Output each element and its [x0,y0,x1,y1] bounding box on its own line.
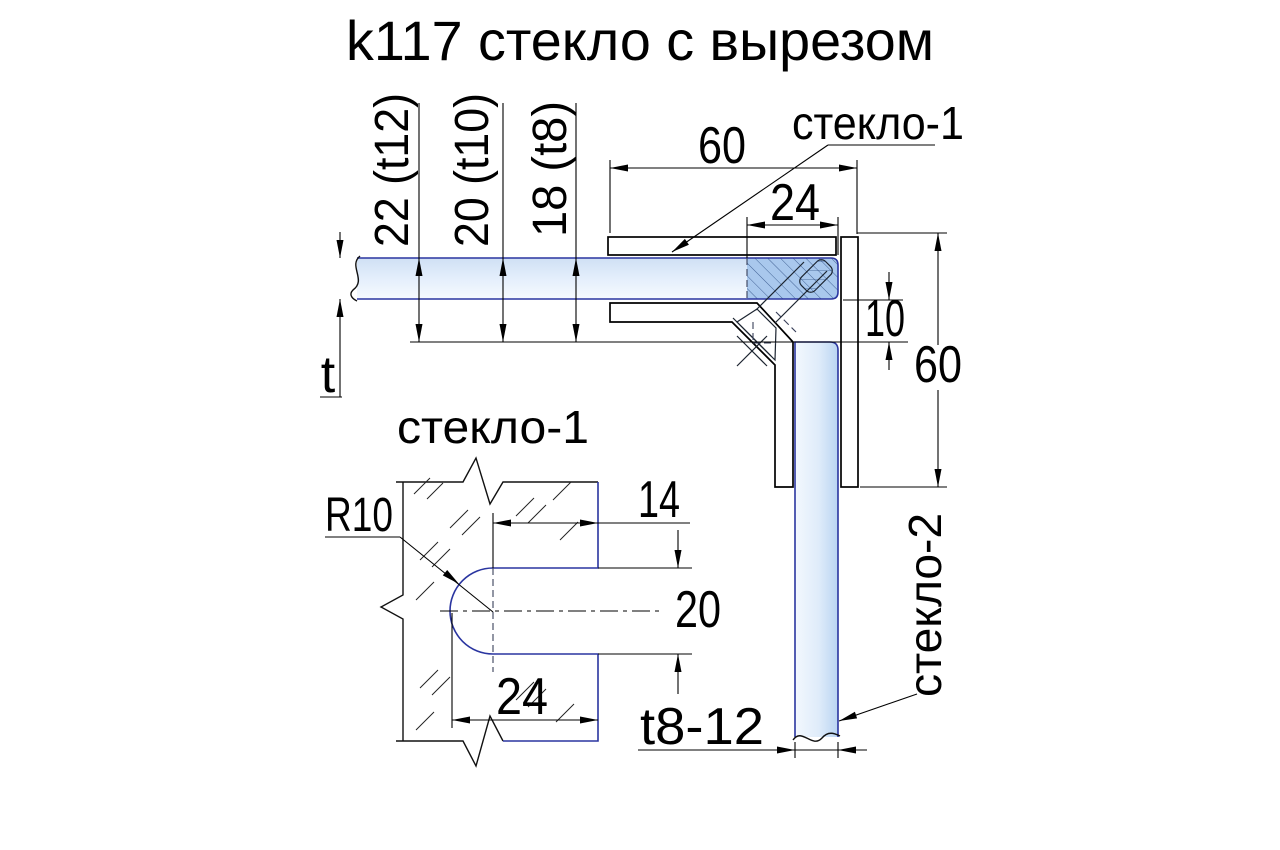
glass1-label: стекло-1 [792,97,964,149]
detail-centerlines [440,513,660,672]
glass2-label: стекло-2 [899,513,951,697]
dim-10-text: 10 [865,290,905,348]
dim-24-detail: 24 [452,613,598,728]
dim-20: 20 [598,530,721,694]
top-clamp-plate [608,237,836,255]
dim-20-text: 20 [675,581,721,639]
drawing-canvas: k117 стекло с вырезом [0,0,1280,850]
technical-drawing-page: k117 стекло с вырезом [0,0,1280,850]
dim-side-60-text: 60 [914,336,962,394]
glass1-horizontal-panel [351,256,838,301]
dim-top-60-text: 60 [698,117,746,175]
inner-clamp-plate [610,303,793,487]
dim-side-60: 60 [857,233,962,487]
dim-t: t [320,232,344,404]
dim-14-text: 14 [638,471,680,529]
dim-thickness-t12: 22 (t12) [366,93,419,247]
dim-t8-12-text: t8-12 [640,698,764,756]
dim-thickness-t8: 18 (t8) [524,101,577,237]
dim-24-detail-text: 24 [496,668,548,726]
dim-t-text: t [321,346,336,404]
page-title: k117 стекло с вырезом [346,9,934,72]
glass2-vertical-panel [793,342,840,741]
dim-r10: R10 [325,489,493,612]
detail-title: стекло-1 [397,401,589,453]
dim-r10-text: R10 [325,489,393,542]
outer-clamp-plate [841,237,858,487]
dim-14: 14 [493,471,690,529]
glass2-callout: стекло-2 [839,513,951,721]
dim-24-text: 24 [770,174,820,232]
dim-thickness-t10: 20 (t10) [446,93,499,247]
